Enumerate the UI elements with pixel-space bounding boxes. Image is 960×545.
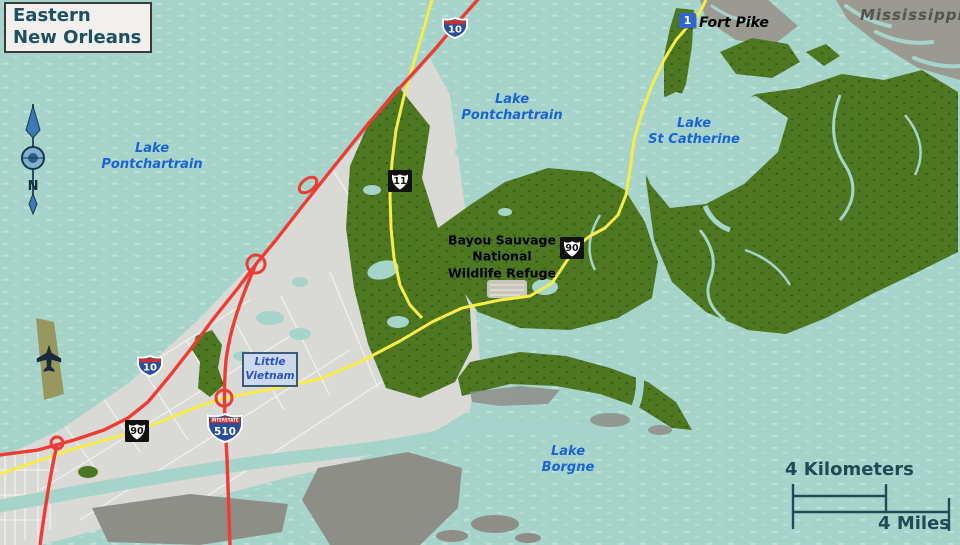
map-title: Eastern New Orleans (4, 2, 152, 53)
compass-north-label: N (28, 179, 39, 194)
scale-kilometers-label: 4 Kilometers (785, 459, 914, 480)
label-lake-st-catherine: Lake St Catherine (648, 116, 740, 149)
map: N Eastern New Orleans Lake Pontchartrain… (0, 0, 960, 545)
i10-shield-north: 10 (442, 17, 468, 39)
label-lake-pontchartrain-north: Lake Pontchartrain (461, 92, 562, 125)
label-fort-pike: Fort Pike (699, 15, 769, 31)
i510-interstate-caption: INTERSTATE (212, 418, 239, 423)
poi-marker-1: 1 (679, 13, 696, 28)
us90-shield-west: 90 (125, 420, 149, 442)
label-lake-pontchartrain-west: Lake Pontchartrain (101, 141, 202, 174)
campground-area (487, 280, 527, 298)
label-lake-borgne: Lake Borgne (542, 444, 595, 477)
i10-shield-number: 10 (143, 363, 157, 374)
i510-shield: INTERSTATE 510 (207, 413, 243, 443)
i10-shield-number: 10 (448, 25, 462, 36)
us90-shield-number: 90 (130, 426, 144, 437)
us11-shield: 11 (388, 170, 412, 192)
label-little-vietnam: Little Vietnam (242, 352, 298, 387)
scale-miles-label: 4 Miles (845, 513, 950, 534)
label-mississippi: Mississippi (860, 6, 960, 24)
us90-shield-number: 90 (565, 243, 579, 254)
i10-shield-west: 10 (137, 355, 163, 377)
label-wildlife-refuge: Bayou Sauvage National Wildlife Refuge (448, 233, 556, 282)
i510-shield-number: 510 (214, 426, 236, 438)
us90-shield-east: 90 (560, 237, 584, 259)
us11-shield-number: 11 (393, 176, 406, 187)
